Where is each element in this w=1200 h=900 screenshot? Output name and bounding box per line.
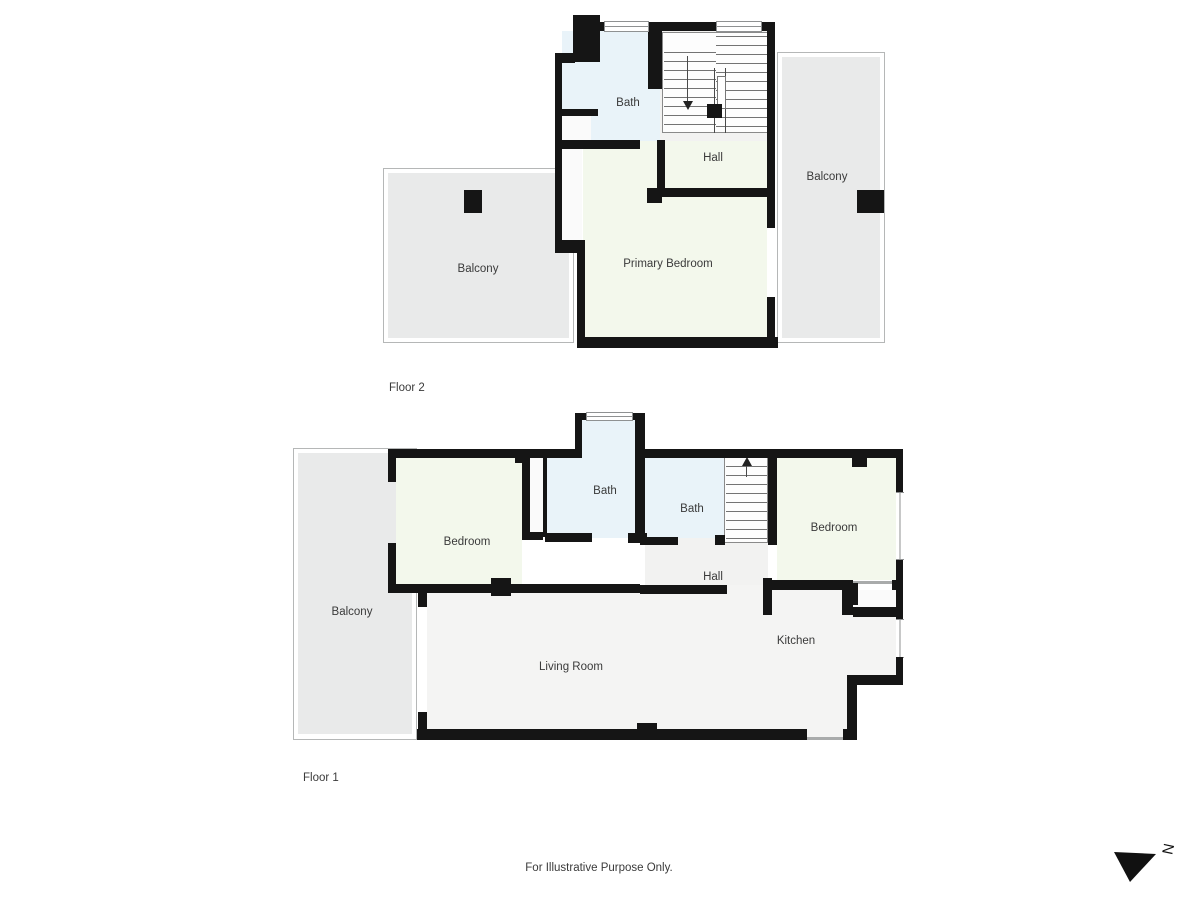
wall-cavity-fill <box>530 458 543 540</box>
north-letter: N <box>1158 842 1177 856</box>
room-label-hall: Hall <box>703 571 723 583</box>
wall-segment <box>555 140 640 149</box>
wall-segment <box>852 457 867 467</box>
disclaimer-text: For Illustrative Purpose Only. <box>525 862 672 874</box>
wall-segment <box>417 729 807 740</box>
window <box>896 619 904 658</box>
wall-segment <box>418 712 427 736</box>
wall-segment <box>555 53 575 63</box>
wall-cavity-fill <box>562 149 582 240</box>
stair-treads <box>664 52 716 132</box>
room-primary-bedroom-fill <box>583 141 767 338</box>
room-label-bath-mid: Bath <box>680 503 704 515</box>
room-label-bath-top: Bath <box>593 485 617 497</box>
wall-segment <box>648 31 662 89</box>
wall-segment <box>543 457 547 537</box>
opening-sill-line <box>853 581 892 584</box>
floor1-plan: Bath Bath Bedroom Bedroom Hall Balcony K… <box>0 400 1200 820</box>
wall-segment <box>647 188 662 203</box>
wall-segment <box>573 15 600 62</box>
room-label-balcony-left: Balcony <box>458 263 499 275</box>
wall-segment <box>715 535 725 545</box>
room-label-hall: Hall <box>703 152 723 164</box>
opening-sill-line <box>807 737 843 740</box>
wall-segment <box>657 140 665 188</box>
wall-segment <box>640 585 727 594</box>
stair-direction-line <box>687 56 688 101</box>
bath-niche-fill <box>562 116 591 141</box>
stair-down-arrow-icon <box>683 101 693 110</box>
stair-treads <box>726 466 767 540</box>
room-label-balcony: Balcony <box>332 606 373 618</box>
balcony-pillar <box>857 190 884 213</box>
wall-segment <box>562 109 598 116</box>
wall-segment <box>555 149 562 242</box>
wall-segment <box>388 449 396 482</box>
window <box>586 412 633 421</box>
wall-segment <box>577 337 778 348</box>
wall-segment <box>555 240 585 253</box>
wall-segment <box>647 188 775 197</box>
wall-segment <box>640 537 678 545</box>
wall-segment <box>896 449 903 493</box>
room-bedroom-right-fill <box>777 458 896 580</box>
north-arrow-icon: N <box>1106 838 1180 890</box>
floor-label-1: Floor 1 <box>303 772 339 784</box>
room-label-living-room: Living Room <box>539 661 603 673</box>
wall-segment <box>577 253 585 338</box>
wall-segment <box>842 585 853 615</box>
room-bath-top-fill <box>582 420 638 458</box>
window <box>716 21 762 32</box>
floor2-plan: Bath Hall Balcony Balcony Primary Bedroo… <box>0 0 1200 420</box>
wall-segment <box>768 580 853 590</box>
floor-label-2: Floor 2 <box>389 382 425 394</box>
window <box>604 21 649 32</box>
wall-segment <box>768 449 777 545</box>
kitchen-nook-fill <box>853 590 896 607</box>
stair-divider-line <box>714 68 715 133</box>
north-arrow-dart <box>1114 852 1156 882</box>
wall-pillar <box>491 578 511 596</box>
wall-segment <box>767 297 775 338</box>
wall-segment <box>635 420 645 538</box>
stair-newel-post <box>707 104 722 118</box>
floorplan-page: { "colors": { "wall": "#151515", "bath":… <box>0 0 1200 900</box>
room-bedroom-left-fill <box>396 458 522 584</box>
wall-segment <box>843 729 857 740</box>
wall-segment <box>767 22 775 228</box>
room-balcony-fill <box>298 453 412 734</box>
wall-segment <box>418 590 427 607</box>
room-label-bath: Bath <box>616 97 640 109</box>
room-label-bedroom-left: Bedroom <box>444 536 491 548</box>
wall-segment <box>523 532 543 540</box>
balcony-pillar <box>464 190 482 213</box>
window <box>896 492 904 560</box>
wall-pillar <box>637 723 657 731</box>
room-bath-mid-fill <box>645 458 725 538</box>
room-label-balcony-right: Balcony <box>807 171 848 183</box>
wall-segment <box>545 533 592 542</box>
room-bath-top-fill <box>547 458 637 538</box>
room-label-kitchen: Kitchen <box>777 635 815 647</box>
room-label-bedroom-right: Bedroom <box>811 522 858 534</box>
wall-segment <box>522 457 530 540</box>
wall-segment <box>896 560 903 620</box>
stair-up-arrow-icon <box>742 457 752 466</box>
room-label-primary-bedroom: Primary Bedroom <box>623 258 712 270</box>
